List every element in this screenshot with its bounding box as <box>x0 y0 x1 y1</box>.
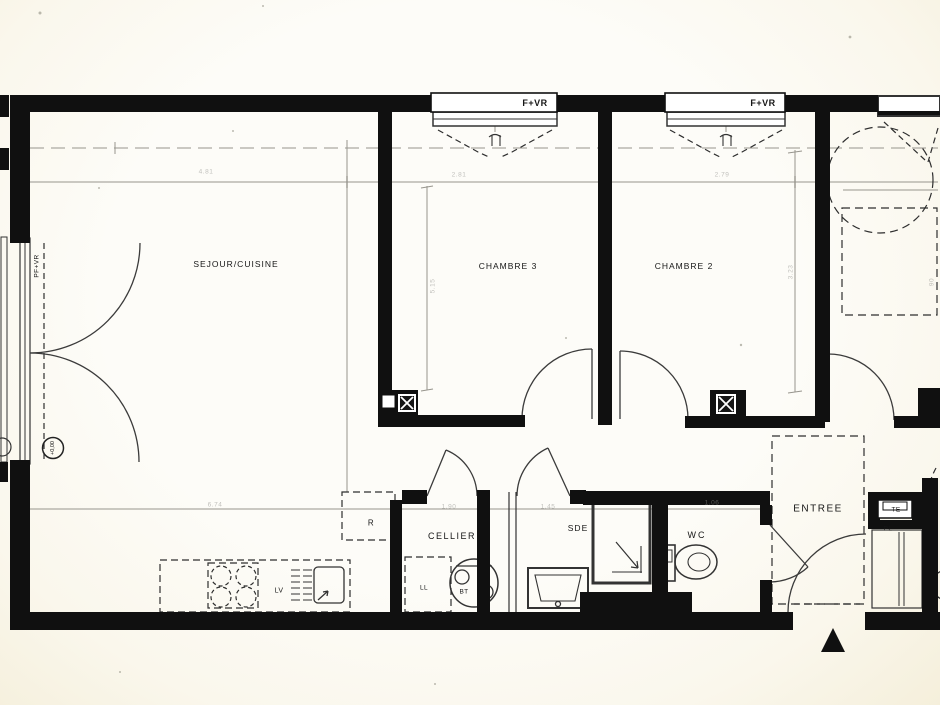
entree-zone-outline <box>772 436 864 604</box>
casement-swing <box>499 130 552 158</box>
wc-door-swing <box>770 567 808 582</box>
room-label-sde: SDE <box>568 523 588 533</box>
dimension-label: 3.23 <box>788 265 795 280</box>
burner-icon <box>211 587 231 607</box>
room-label-wc: WC <box>688 530 707 540</box>
shower-drain-arrow <box>616 542 638 568</box>
dimension-label: 6.74 <box>208 502 223 509</box>
toilet-bowl-icon <box>675 545 717 579</box>
entrance-marker-triangle <box>821 628 845 652</box>
chambre3-door-swing <box>522 349 592 419</box>
turning-circle <box>827 127 933 233</box>
wc-door-leaf <box>770 525 808 567</box>
window-axis-mark <box>720 135 732 147</box>
level-marker-label: +0,00 <box>50 441 56 455</box>
equipment-label-tableau-electrique: TE <box>891 507 900 514</box>
room-label-chambre3: CHAMBRE 3 <box>479 261 538 271</box>
kitchen-counter <box>160 560 350 612</box>
room-label-sejour-cuisine: SEJOUR/CUISINE <box>193 259 278 269</box>
burner-icon <box>236 566 256 586</box>
dimension-label: 1.45 <box>541 504 556 511</box>
room-label-cellier: CELLIER <box>428 531 476 541</box>
dimension-label: 2.81 <box>452 172 467 179</box>
toilet-bowl-inner <box>688 553 710 571</box>
closet-doors <box>899 532 904 606</box>
sde-door-swing <box>517 448 548 496</box>
pipe-symbol-fragment <box>0 438 11 456</box>
duct-partition <box>509 492 516 612</box>
washbasin-bowl <box>535 575 581 601</box>
window-label-fvr-1: F+VR <box>522 98 547 108</box>
cellier-door-leaf <box>427 450 446 496</box>
floorplan-canvas: SEJOUR/CUISINE CHAMBRE 3 CHAMBRE 2 CELLI… <box>0 0 940 705</box>
equipment-label-rangement: R <box>368 519 374 528</box>
chambre2-door-swing <box>620 351 688 419</box>
window-label-fvr-2: F+VR <box>750 98 775 108</box>
window-axis-mark <box>489 135 501 147</box>
floorplan-linework <box>0 0 940 705</box>
equipment-label-ballon: BT <box>459 589 468 596</box>
door-label-pfvr: PF+VR <box>34 254 41 277</box>
equipment-label-lave-linge: LL <box>420 585 428 592</box>
shower-corner-lines <box>612 546 642 573</box>
storage-r-outline <box>342 492 395 540</box>
dimension-label: 5.15 <box>430 279 437 294</box>
balcony-edge-fragment <box>1 237 7 462</box>
dimension-label: 2.79 <box>715 172 730 179</box>
washbasin-drain <box>556 602 561 607</box>
sde-door-leaf <box>548 448 570 496</box>
shaft-symbols <box>382 394 736 414</box>
dimension-lines <box>30 114 938 509</box>
dimension-label: 90 <box>929 278 936 286</box>
casement-swing <box>884 122 925 160</box>
room-label-entree: ENTREE <box>793 504 843 515</box>
dashed-equipment <box>44 122 938 612</box>
stove-outline <box>208 563 258 608</box>
equipment-label-placard: PL <box>884 526 893 533</box>
water-heater-dial <box>455 570 469 584</box>
bed-outline <box>842 208 937 315</box>
dimension-label: 1.06 <box>705 500 720 507</box>
room-label-chambre2: CHAMBRE 2 <box>655 261 714 271</box>
cellier-door-swing <box>446 450 477 496</box>
casement-swing <box>670 130 722 158</box>
closet-pl-outline <box>872 530 922 608</box>
walls <box>0 95 940 630</box>
equipment-label-lave-vaisselle: LV <box>275 588 284 595</box>
casement-swing <box>928 128 938 162</box>
dimension-label: 1.90 <box>442 504 457 511</box>
casement-swing <box>730 130 782 158</box>
dish-rack-icon <box>291 570 312 600</box>
burner-icon <box>211 566 231 586</box>
french-door-swing <box>30 353 139 462</box>
dimension-label: 4.81 <box>199 169 214 176</box>
sink-icon <box>314 567 344 603</box>
tap-arrow-icon <box>318 591 328 600</box>
burner-icon <box>236 587 256 607</box>
casement-swing <box>438 130 491 158</box>
french-door-swing <box>30 243 140 353</box>
bedroom-right-door-swing <box>828 354 894 420</box>
